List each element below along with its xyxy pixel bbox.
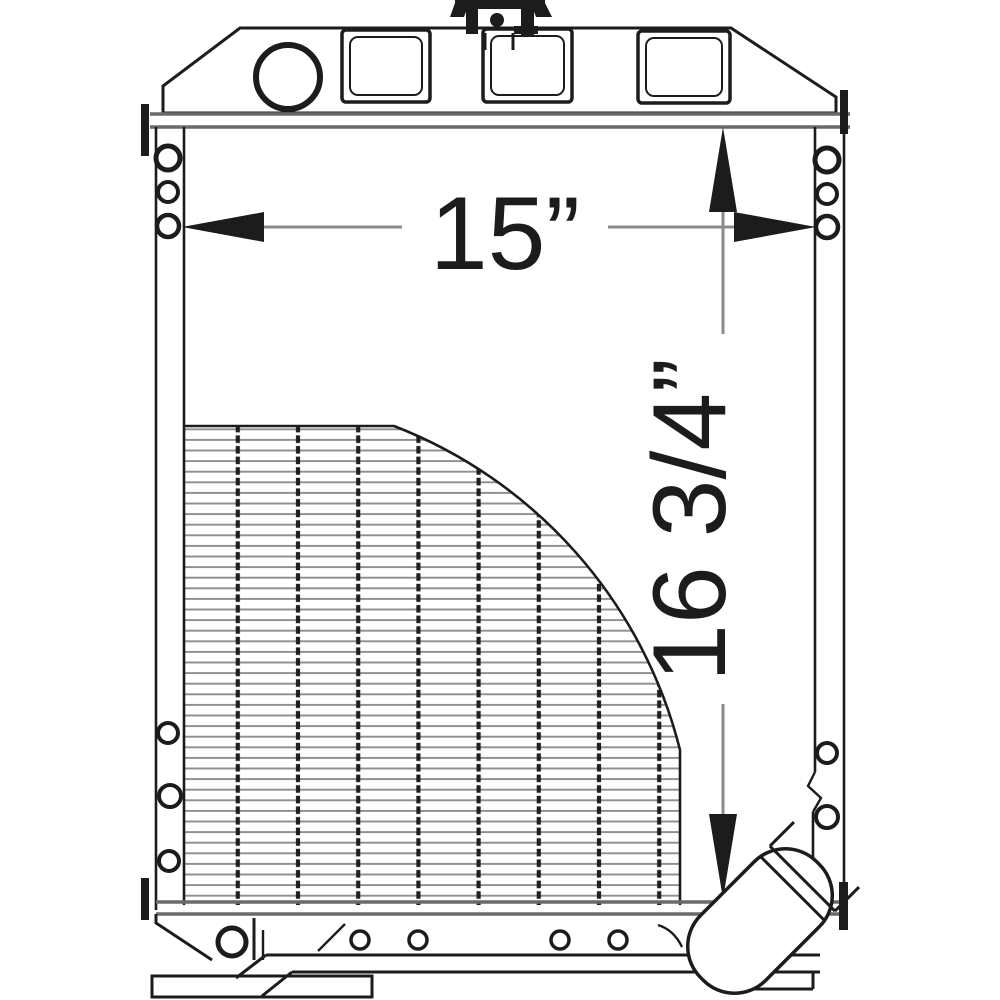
mounting-hole: [156, 146, 180, 170]
tank-seam-mark: [658, 925, 682, 947]
drain-plug: [218, 918, 263, 960]
bottom-tank: [156, 914, 682, 960]
height-dimension-label: 16 3/4”: [632, 358, 748, 682]
header-tab-left: [141, 878, 149, 920]
header-tab-bottom-right: [839, 882, 848, 930]
mounting-hole: [159, 851, 179, 871]
arrowhead-left-icon: [182, 212, 264, 242]
diagram-canvas: 15” 16 3/4”: [0, 0, 1000, 1000]
mounting-hole: [816, 216, 838, 238]
radiator-technical-diagram: 15” 16 3/4”: [0, 0, 1000, 1000]
outlet-pipe: [669, 822, 859, 1000]
channel-break-mark: [808, 772, 821, 812]
side-channel-left: [156, 127, 184, 910]
tank-bolt-hole: [409, 931, 427, 949]
mounting-hole: [158, 723, 178, 743]
mounting-hole: [816, 806, 838, 828]
tank-seam-mark: [318, 924, 345, 951]
mounting-hole: [159, 785, 181, 807]
drain-plug-circle: [218, 928, 246, 956]
cap-latch: [514, 26, 538, 34]
mounting-hole: [817, 743, 837, 763]
tank-bolt-hole: [609, 931, 627, 949]
mounting-hole: [157, 215, 179, 237]
arrowhead-up-icon: [709, 127, 737, 212]
cap-leg-left: [466, 9, 478, 34]
cap-center-detail: [490, 13, 504, 27]
header-tab-left: [141, 104, 149, 156]
bottom-tank-corner: [156, 914, 212, 960]
mounting-hole: [817, 184, 837, 204]
width-dimension-label: 15”: [430, 176, 580, 292]
mounting-hole: [815, 148, 839, 172]
tank-bolt-hole: [551, 931, 569, 949]
mounting-hole: [158, 182, 178, 202]
core-fin-tube-pattern: [183, 426, 680, 905]
bracket-foot-left: [152, 976, 372, 997]
pipe-stub-line: [770, 822, 794, 846]
side-channel-right: [808, 127, 844, 912]
tank-bolt-hole: [351, 931, 369, 949]
arrowhead-right-icon: [734, 212, 816, 242]
radiator-core-grid: [183, 426, 680, 905]
top-tank: [163, 28, 836, 113]
